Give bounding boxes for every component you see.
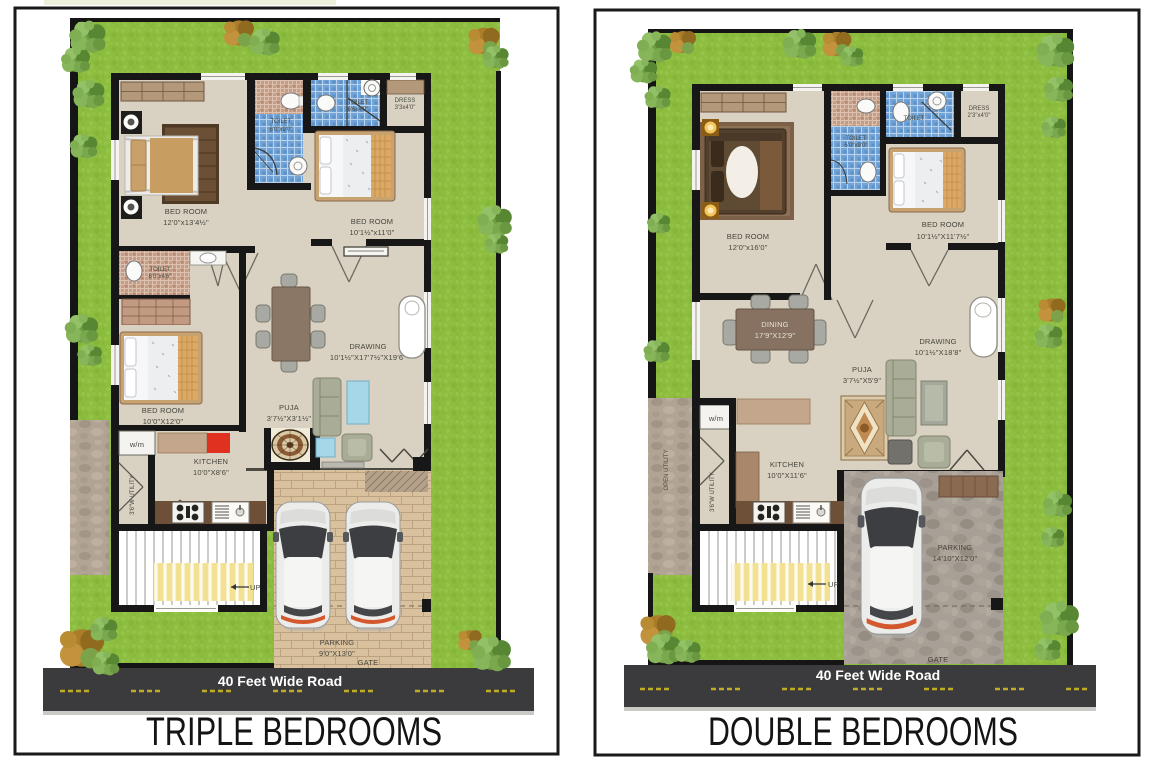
svg-text:12'0"x16'0": 12'0"x16'0" bbox=[728, 243, 767, 252]
svg-text:6'0"x4'6": 6'0"x4'6" bbox=[149, 274, 172, 280]
svg-text:10'0"X12'0": 10'0"X12'0" bbox=[143, 417, 184, 426]
svg-text:6'6x4'0": 6'6x4'0" bbox=[348, 107, 369, 113]
svg-text:DOUBLE BEDROOMS: DOUBLE BEDROOMS bbox=[708, 710, 1018, 754]
svg-text:5'0"x9'0": 5'0"x9'0" bbox=[845, 143, 868, 149]
svg-text:TOILET: TOILET bbox=[348, 100, 369, 106]
svg-text:TRIPLE BEDROOMS: TRIPLE BEDROOMS bbox=[146, 710, 442, 754]
svg-text:BED ROOM: BED ROOM bbox=[922, 220, 964, 229]
svg-text:3'6"W UTILITY: 3'6"W UTILITY bbox=[710, 472, 716, 512]
svg-text:PUJA: PUJA bbox=[852, 365, 872, 374]
svg-text:w/m: w/m bbox=[708, 414, 723, 423]
svg-text:3'3x4'0": 3'3x4'0" bbox=[395, 105, 416, 111]
svg-text:DRAWING: DRAWING bbox=[349, 342, 386, 351]
svg-text:17'9"X12'9": 17'9"X12'9" bbox=[755, 331, 796, 340]
svg-text:TOILET: TOILET bbox=[846, 136, 867, 142]
svg-text:w/m: w/m bbox=[129, 440, 144, 449]
svg-text:DRAWING: DRAWING bbox=[919, 337, 956, 346]
svg-text:DINING: DINING bbox=[761, 320, 788, 329]
svg-text:DRESS: DRESS bbox=[969, 106, 990, 112]
svg-text:TOILET: TOILET bbox=[904, 116, 925, 122]
svg-text:2'3"x4'0": 2'3"x4'0" bbox=[968, 113, 991, 119]
svg-text:12'0"x13'4½": 12'0"x13'4½" bbox=[163, 218, 209, 227]
svg-text:10'1½"X11'7½": 10'1½"X11'7½" bbox=[917, 232, 970, 241]
svg-text:14'10"X12'0": 14'10"X12'0" bbox=[933, 554, 978, 563]
svg-text:KITCHEN: KITCHEN bbox=[194, 457, 228, 466]
svg-text:10'0"X8'6": 10'0"X8'6" bbox=[193, 468, 229, 477]
svg-text:KITCHEN: KITCHEN bbox=[770, 460, 804, 469]
svg-text:BED ROOM: BED ROOM bbox=[142, 406, 184, 415]
svg-text:TOILET: TOILET bbox=[150, 267, 171, 273]
svg-text:BED ROOM: BED ROOM bbox=[165, 207, 207, 216]
svg-text:6'0"x9'0": 6'0"x9'0" bbox=[270, 127, 293, 133]
svg-text:BED ROOM: BED ROOM bbox=[351, 217, 393, 226]
svg-text:TOILET: TOILET bbox=[271, 119, 292, 125]
svg-text:OPEN UTILITY: OPEN UTILITY bbox=[664, 449, 670, 490]
svg-text:9'0"X13'0": 9'0"X13'0" bbox=[319, 649, 355, 658]
svg-text:40 Feet Wide Road: 40 Feet Wide Road bbox=[218, 673, 342, 689]
svg-text:PUJA: PUJA bbox=[279, 403, 299, 412]
svg-text:40 Feet Wide Road: 40 Feet Wide Road bbox=[816, 667, 940, 683]
svg-text:3'6"W UTILITY: 3'6"W UTILITY bbox=[130, 475, 136, 515]
svg-text:3'7½"X3'1½": 3'7½"X3'1½" bbox=[267, 414, 312, 423]
svg-text:10'1½"X17'7½"X19'6": 10'1½"X17'7½"X19'6" bbox=[330, 353, 406, 362]
svg-text:10'0"X11'6": 10'0"X11'6" bbox=[767, 471, 807, 480]
svg-text:BED ROOM: BED ROOM bbox=[727, 232, 769, 241]
svg-text:DRESS: DRESS bbox=[395, 98, 416, 104]
svg-text:UP: UP bbox=[828, 580, 839, 589]
svg-text:UP: UP bbox=[250, 583, 261, 592]
svg-text:PARKING: PARKING bbox=[938, 543, 973, 552]
svg-text:GATE: GATE bbox=[928, 655, 949, 664]
svg-text:10'1½"X18'8": 10'1½"X18'8" bbox=[915, 348, 962, 357]
svg-text:10'1½"x11'0": 10'1½"x11'0" bbox=[349, 228, 394, 237]
svg-text:3'7½"X5'9": 3'7½"X5'9" bbox=[843, 376, 881, 385]
svg-text:PARKING: PARKING bbox=[320, 638, 355, 647]
svg-text:GATE: GATE bbox=[358, 658, 379, 667]
